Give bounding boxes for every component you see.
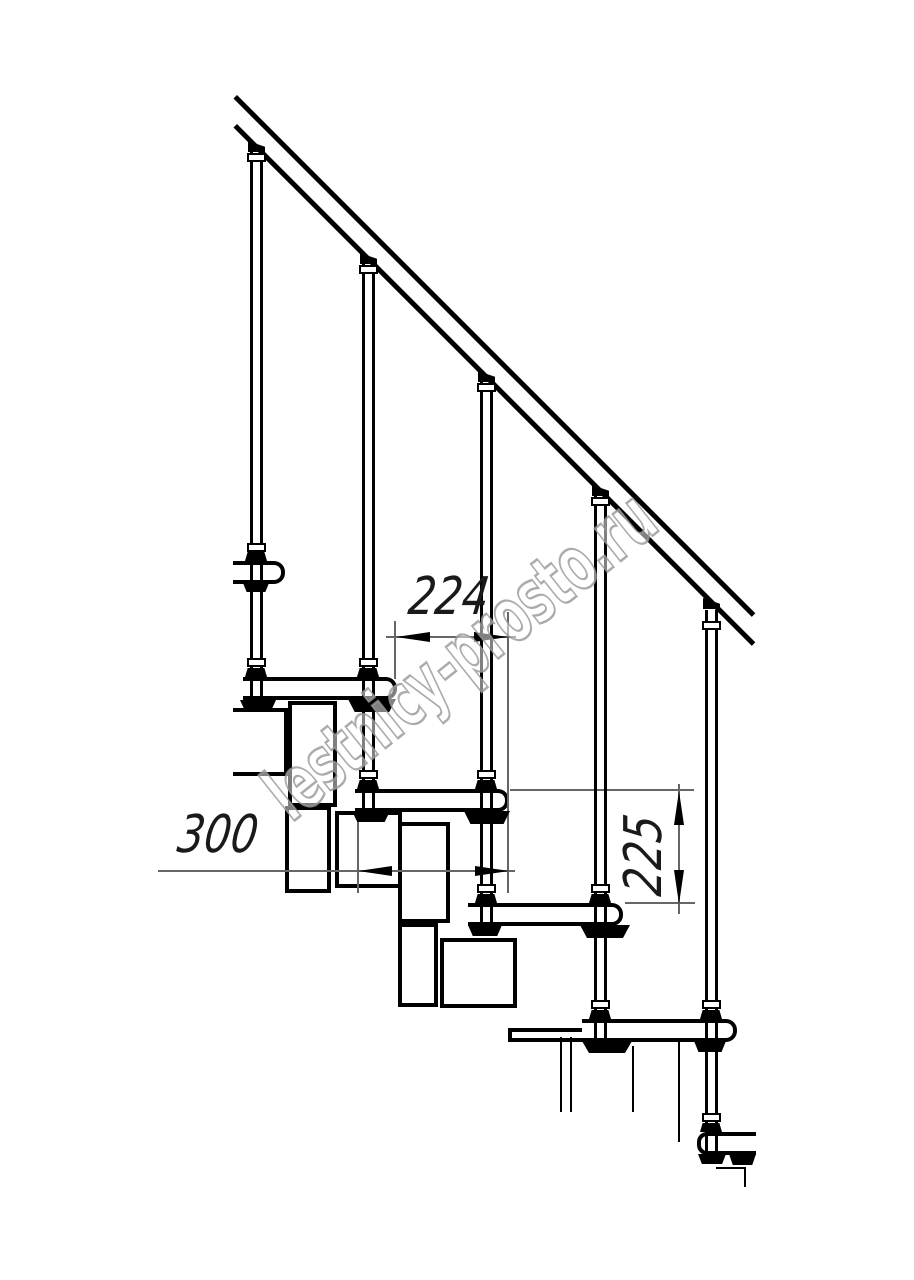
dimension-label-riser-height: 225 (619, 798, 669, 912)
under-tread-clamp (352, 811, 390, 822)
arrowhead-right-icon (475, 866, 509, 876)
rod-collar (477, 884, 496, 893)
under-tread-clamp (582, 1041, 632, 1053)
rod-mount (700, 1010, 722, 1019)
rod-collar (702, 1000, 721, 1009)
rod-collar (247, 543, 266, 552)
staircase-drawing: 224 300 225 lestnicy-prosto.ru (0, 0, 914, 1280)
baluster-rod (250, 152, 263, 708)
module-box (440, 938, 517, 1008)
under-tread-clamp (464, 811, 510, 824)
module-box (335, 811, 402, 888)
break-line (678, 1041, 680, 1142)
handrail-top-line (233, 95, 755, 617)
baluster-rod (705, 610, 718, 1164)
rod-collar (702, 621, 721, 630)
under-tread-clamp (698, 1154, 726, 1164)
rod-collar (477, 383, 496, 392)
break-line (570, 1037, 572, 1112)
dimension-line-300 (158, 870, 515, 872)
break-line (716, 1167, 746, 1169)
rod-mount (475, 780, 497, 789)
rod-collar (247, 658, 266, 667)
rod-collar (477, 770, 496, 779)
rod-mount (700, 1123, 722, 1132)
under-tread-clamp (729, 1154, 756, 1165)
rod-mount (245, 668, 267, 677)
break-line (560, 1037, 562, 1112)
under-tread-clamp (580, 925, 630, 938)
rod-collar (359, 265, 378, 274)
rod-collar (591, 884, 610, 893)
rod-mount (475, 894, 497, 903)
watermark: lestnicy-prosto.ru (247, 473, 673, 837)
module-flange (508, 1028, 584, 1042)
extension-line (357, 813, 359, 893)
break-line (744, 1167, 746, 1187)
rod-mount (589, 894, 611, 903)
arrowhead-left-icon (358, 866, 392, 876)
rod-collar (591, 1000, 610, 1009)
rod-mount (589, 1010, 611, 1019)
rod-collar (247, 153, 266, 162)
arrowhead-up-icon (674, 791, 684, 825)
module-box (398, 822, 450, 923)
break-line (632, 1046, 634, 1112)
under-tread-clamp (243, 583, 269, 592)
rod-mount (245, 552, 267, 561)
under-tread-clamp (468, 925, 502, 936)
arrowhead-down-icon (674, 870, 684, 904)
module-box (398, 923, 438, 1007)
rod-collar (702, 1113, 721, 1122)
dimension-label-tread-depth: 300 (158, 810, 277, 860)
under-tread-clamp (694, 1041, 726, 1052)
under-tread-clamp (240, 700, 276, 711)
